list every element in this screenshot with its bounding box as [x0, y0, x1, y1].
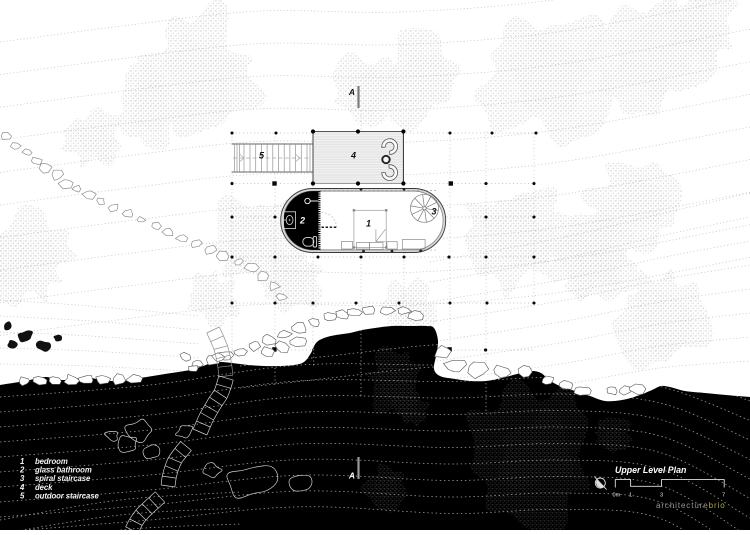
svg-text:Upper Level Plan: Upper Level Plan	[615, 465, 686, 475]
svg-text:7: 7	[722, 493, 725, 499]
svg-text:2: 2	[299, 216, 305, 226]
svg-text:architecturebrio: architecturebrio	[656, 501, 726, 510]
svg-text:A: A	[348, 471, 355, 481]
svg-text:A: A	[348, 87, 355, 97]
svg-text:0m: 0m	[613, 493, 621, 499]
svg-text:1: 1	[629, 493, 632, 499]
svg-text:outdoor staircase: outdoor staircase	[35, 491, 99, 500]
svg-text:3: 3	[432, 207, 437, 217]
svg-text:1: 1	[366, 219, 371, 229]
svg-text:4: 4	[350, 151, 356, 161]
svg-text:3: 3	[660, 493, 663, 499]
